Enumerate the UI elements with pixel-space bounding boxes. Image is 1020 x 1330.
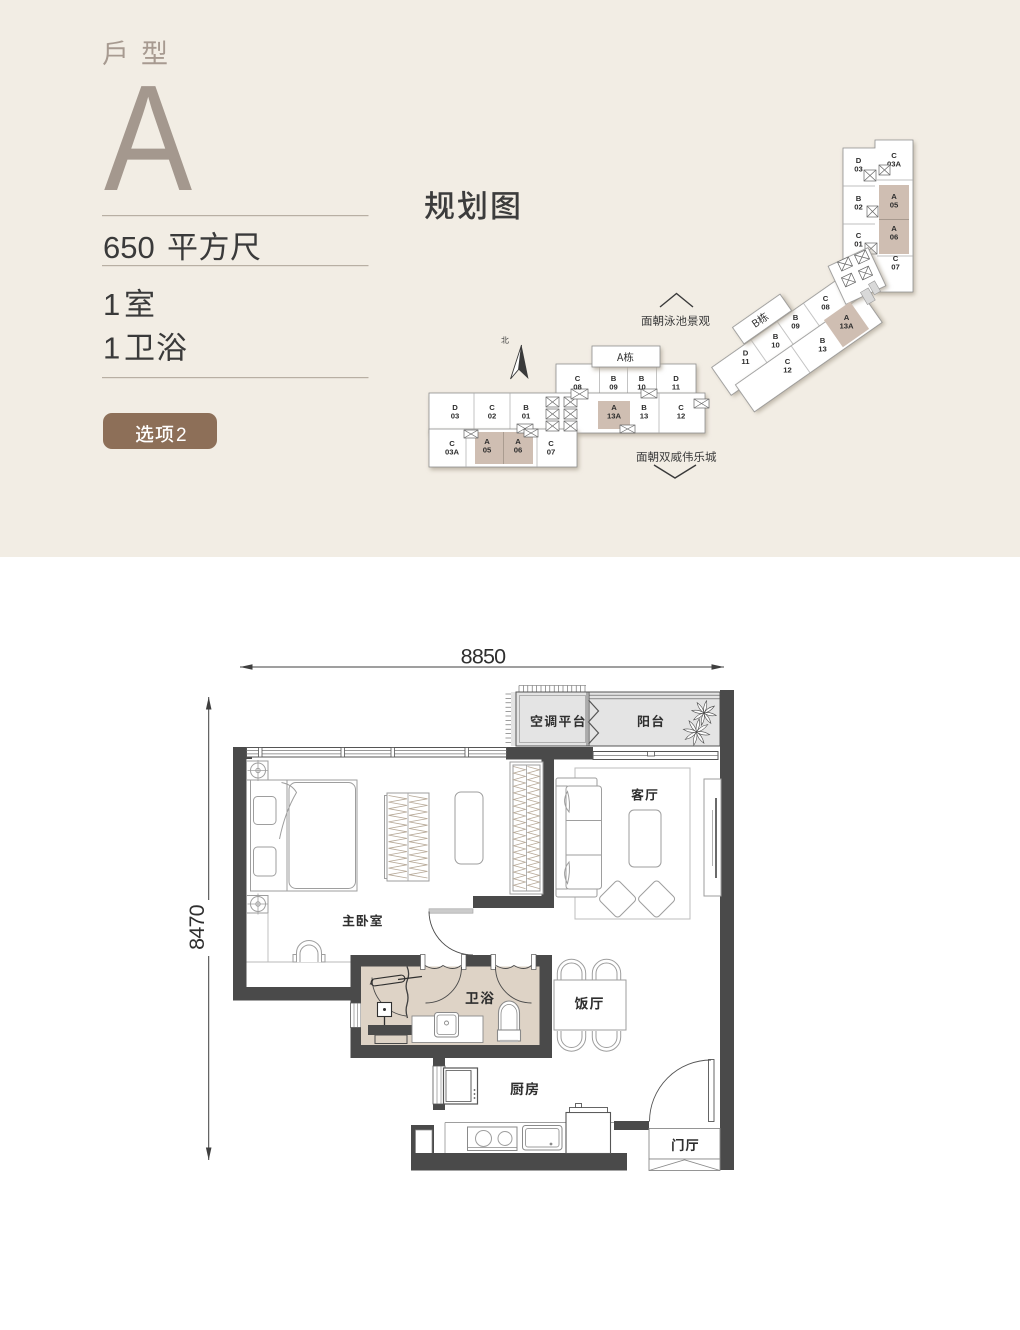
svg-text:2: 2 xyxy=(176,425,187,446)
svg-text:03: 03 xyxy=(854,165,863,174)
svg-text:13: 13 xyxy=(818,345,827,354)
svg-text:06: 06 xyxy=(514,446,523,455)
svg-text:03: 03 xyxy=(451,412,460,421)
svg-text:10: 10 xyxy=(771,341,780,350)
svg-text:650: 650 xyxy=(103,230,155,265)
svg-text:1: 1 xyxy=(103,287,120,322)
svg-text:12: 12 xyxy=(783,366,792,375)
svg-text:05: 05 xyxy=(890,201,899,210)
svg-text:13: 13 xyxy=(640,412,649,421)
svg-text:02: 02 xyxy=(488,412,497,421)
svg-text:8470: 8470 xyxy=(185,904,209,949)
svg-text:08: 08 xyxy=(821,303,830,312)
svg-text:09: 09 xyxy=(609,383,618,392)
svg-text:13A: 13A xyxy=(839,322,854,331)
svg-text:09: 09 xyxy=(791,322,800,331)
svg-text:01: 01 xyxy=(854,240,863,249)
svg-text:01: 01 xyxy=(522,412,531,421)
svg-text:8850: 8850 xyxy=(461,645,506,669)
svg-text:02: 02 xyxy=(854,203,863,212)
svg-text:08: 08 xyxy=(573,383,582,392)
svg-text:10: 10 xyxy=(637,383,646,392)
svg-text:07: 07 xyxy=(891,263,900,272)
svg-text:05: 05 xyxy=(483,446,492,455)
svg-text:13A: 13A xyxy=(607,412,622,421)
svg-text:11: 11 xyxy=(741,357,750,366)
svg-text:03A: 03A xyxy=(445,448,460,457)
svg-text:12: 12 xyxy=(677,412,686,421)
svg-text:07: 07 xyxy=(547,448,556,457)
svg-text:06: 06 xyxy=(890,233,899,242)
svg-text:1: 1 xyxy=(103,331,120,366)
svg-text:A: A xyxy=(104,55,192,223)
svg-text:11: 11 xyxy=(672,383,681,392)
